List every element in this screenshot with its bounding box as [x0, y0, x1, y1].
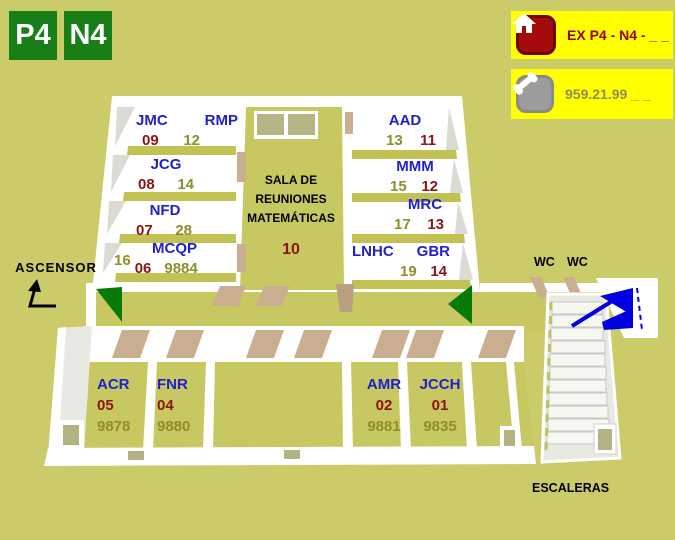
wc-label-right: WC	[567, 255, 588, 269]
room-number: 14	[430, 262, 447, 282]
room-number: 04	[157, 397, 174, 414]
room-label-jmc-rmp: JMC RMP 09 12	[136, 111, 238, 151]
extension-box[interactable]: EX P4 - N4 - _ _	[511, 11, 673, 59]
room-label-nfd: NFD 07 28	[136, 201, 194, 241]
room-name: JCG	[151, 156, 182, 173]
elevator-arrow-icon	[28, 279, 56, 306]
room-extension: 9881	[367, 418, 400, 435]
room-name: FNR	[157, 376, 188, 393]
room-number: 08	[138, 175, 155, 195]
phone-glyph	[511, 69, 539, 97]
room-name: JMC	[136, 111, 168, 131]
stairs-label: ESCALERAS	[532, 481, 609, 495]
room-name: MCQP	[152, 240, 197, 257]
home-icon[interactable]	[516, 15, 556, 55]
floor-badge-n4: N4	[64, 11, 112, 60]
room-label-jcg: JCG 08 14	[138, 155, 194, 195]
step	[550, 354, 605, 366]
step	[550, 367, 606, 379]
room-name: LNHC	[352, 242, 394, 262]
door-pane	[598, 429, 612, 450]
room-label-mcqp: MCQP 16 06 9884	[112, 239, 208, 279]
door-marker	[345, 112, 353, 134]
room-extension: 15	[390, 177, 407, 197]
step	[549, 380, 606, 392]
phone-icon[interactable]	[516, 75, 554, 113]
room-extension: 14	[177, 175, 194, 195]
wall	[86, 283, 96, 333]
meeting-room-line: MATEMÁTICAS	[246, 209, 336, 228]
step	[551, 328, 603, 340]
room-name: MRC	[408, 196, 442, 213]
window-pane	[504, 430, 515, 446]
wc-label-left: WC	[534, 255, 555, 269]
extension-text: EX P4 - N4 - _ _	[567, 27, 669, 43]
floor-map-page: P4 N4 EX P4 - N4 - _ _ 959.21.99 _ _ JMC…	[0, 0, 675, 540]
room-extension: 13	[386, 131, 403, 151]
window-pane	[288, 114, 315, 135]
arrow-head	[28, 279, 41, 292]
phone-box[interactable]: 959.21.99 _ _	[511, 69, 673, 119]
elevator-label: ASCENSOR	[8, 260, 104, 275]
room-extension: 17	[394, 215, 411, 235]
room-extension: 19	[400, 262, 417, 282]
room-name: MMM	[396, 158, 434, 175]
room-label-lnhc-gbr: LNHC GBR 19 14	[352, 242, 450, 282]
room-number: 09	[142, 131, 159, 151]
room-number: 07	[136, 221, 153, 241]
room-extension: 9880	[157, 418, 190, 435]
meeting-room-number: 10	[246, 240, 336, 260]
home-glyph	[511, 11, 537, 35]
room-name: AMR	[367, 376, 401, 393]
window-pane	[128, 451, 144, 460]
room-number: 06	[135, 259, 152, 279]
room-extension: 9878	[97, 418, 130, 435]
room-name: AAD	[389, 112, 422, 129]
room-number: 11	[420, 131, 436, 151]
window-pane	[257, 114, 284, 135]
room-number: 02	[376, 397, 393, 414]
room-label-fnr: FNR 04 9880	[153, 374, 201, 437]
room-name: GBR	[417, 242, 450, 262]
room-name: ACR	[97, 376, 130, 393]
room-label-amr: AMR 02 9881	[362, 374, 406, 437]
room-label-jcch: JCCH 01 9835	[416, 374, 464, 437]
room-label-mrc: MRC 17 13	[392, 195, 458, 235]
room-extension: 9884	[164, 259, 197, 279]
floor-badge-p4: P4	[9, 11, 57, 60]
phone-number-text: 959.21.99 _ _	[565, 86, 651, 102]
room-number: 13	[427, 215, 444, 235]
room-extension: 28	[175, 221, 192, 241]
room-extension: 9835	[423, 418, 456, 435]
room-name: NFD	[150, 202, 181, 219]
room-number: 12	[421, 177, 438, 197]
room-number: 05	[97, 397, 114, 414]
meeting-room-label: SALA DE REUNIONES MATEMÁTICAS	[246, 171, 336, 228]
meeting-room-line: REUNIONES	[246, 190, 336, 209]
room-extension: 12	[183, 131, 200, 151]
step	[548, 406, 608, 418]
door-marker	[237, 244, 246, 272]
room-number-alt: 16	[114, 251, 131, 271]
meeting-room-line: SALA DE	[246, 171, 336, 190]
window-pane	[63, 425, 79, 445]
step	[551, 341, 605, 353]
room-label-acr: ACR 05 9878	[92, 374, 143, 437]
room-label-aad: AAD 13 11	[372, 111, 438, 151]
room-name: JCCH	[420, 376, 461, 393]
room-name: RMP	[205, 111, 238, 131]
window-pane	[284, 450, 300, 459]
room-label-mmm: MMM 15 12	[382, 157, 448, 197]
room-number: 01	[432, 397, 449, 414]
door-marker	[237, 152, 246, 182]
step	[549, 393, 607, 405]
